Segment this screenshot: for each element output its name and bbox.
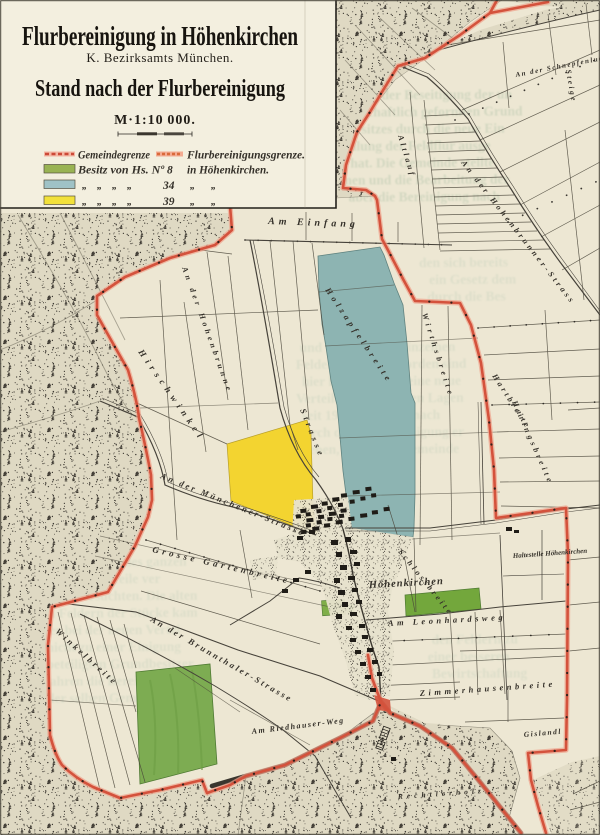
svg-text:Besitz von Hs. Nº: Besitz von Hs. Nº [77, 165, 165, 177]
svg-text:Stand nach der Flurbereinigung: Stand nach der Flurbereinigung [35, 76, 285, 102]
svg-text:„ „ „ „: „ „ „ „ [82, 181, 132, 192]
svg-text:Gemeindegrenze: Gemeindegrenze [78, 150, 150, 162]
svg-text:Flurbereinigungsgrenze.: Flurbereinigungsgrenze. [186, 150, 305, 162]
svg-text:39: 39 [162, 196, 175, 208]
svg-text:8: 8 [167, 165, 173, 177]
svg-text:den Feldern zu: den Feldern zu [432, 631, 519, 647]
svg-text:Bewirtschaftung: Bewirtschaftung [432, 665, 528, 681]
svg-text:ein Gesetz dem: ein Gesetz dem [429, 271, 517, 287]
svg-text:„ „ „ „: „ „ „ „ [82, 197, 132, 208]
svg-text:K. Bezirksamts München.: K. Bezirksamts München. [86, 50, 233, 65]
svg-text:„ „: „ „ [190, 181, 216, 192]
svg-text:M·1:10 000.: M·1:10 000. [114, 113, 196, 128]
svg-text:Flurbereinigung in Höhenkirche: Flurbereinigung in Höhenkirchen [22, 21, 298, 51]
svg-text:34: 34 [162, 180, 175, 192]
svg-text:„ „: „ „ [190, 197, 216, 208]
svg-text:in Höhenkirchen.: in Höhenkirchen. [187, 165, 269, 177]
svg-text:teilung der Feldflur ausge: teilung der Feldflur ausge [342, 138, 490, 154]
svg-text:den sich bereits: den sich bereits [419, 255, 508, 271]
